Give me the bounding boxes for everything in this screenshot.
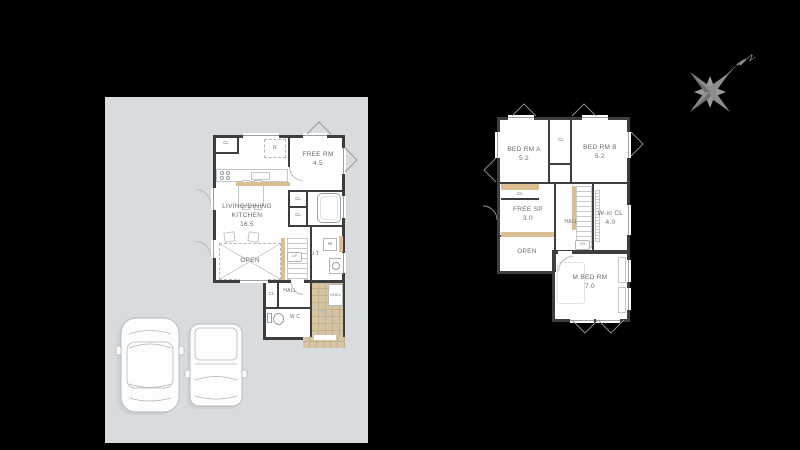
master-bedroom-label: M BED RM 7.0 <box>560 274 620 292</box>
open-label-2f: OPEN <box>501 248 553 257</box>
car-sedan <box>116 318 184 415</box>
wall <box>266 307 310 309</box>
hall-label-1f: HALL <box>274 288 306 295</box>
wall <box>288 190 345 192</box>
ldk-label: LIVING/DINING KITCHEN 16.5 <box>213 203 281 229</box>
hall-label-2f: HALL <box>556 219 586 226</box>
armchair <box>223 231 235 242</box>
wall <box>550 163 570 165</box>
closet-label: CL <box>501 191 539 197</box>
car-mirror <box>242 370 247 378</box>
wall <box>288 206 308 208</box>
closet-label: CL <box>290 212 306 218</box>
floorplan-canvas: CL R FREE RM 4.5 LIVING/DINING KITCHEN 1… <box>0 0 800 450</box>
window <box>570 318 594 323</box>
window <box>240 278 268 283</box>
bathtub-inner <box>320 196 338 220</box>
wall <box>501 198 539 200</box>
wall <box>288 225 345 227</box>
car-compact <box>185 324 247 409</box>
window <box>303 133 327 138</box>
window <box>243 133 279 138</box>
stairs-down-badge: DN <box>575 240 590 250</box>
closet-label: CL <box>215 140 237 146</box>
wall <box>570 119 572 183</box>
window <box>211 240 216 258</box>
bedroom-a-label: BED RM A 5.2 <box>499 146 549 164</box>
window <box>626 260 631 282</box>
kitchen-sink <box>251 172 270 180</box>
wall <box>237 137 239 153</box>
open-label-1f: OPEN <box>219 257 281 266</box>
window <box>626 288 631 310</box>
wall <box>306 192 308 225</box>
wall <box>215 152 239 154</box>
wall <box>288 137 290 167</box>
car-mirror <box>185 370 190 378</box>
front-door <box>314 335 336 340</box>
toilet-tank <box>267 313 272 323</box>
window <box>341 253 346 273</box>
walkin-closet-label: W-in CL 4.0 <box>594 210 627 228</box>
parked-cars <box>112 312 252 420</box>
closet-accent <box>501 184 539 190</box>
free-space-label: FREE SP 3.0 <box>502 206 554 224</box>
wc-label: W C <box>282 314 308 321</box>
compass-needle <box>710 63 739 92</box>
free-room-label: FREE RM 4.5 <box>292 151 344 169</box>
stair-wall <box>281 238 285 280</box>
fridge-label: R <box>264 145 286 152</box>
utility-label: U T <box>304 251 326 258</box>
void-rail <box>501 232 554 237</box>
window <box>596 318 620 323</box>
window <box>341 196 346 218</box>
closet-label: CL <box>552 137 570 143</box>
armchair <box>247 231 259 242</box>
car-mirror <box>116 346 121 355</box>
window <box>508 115 534 120</box>
window <box>582 115 608 120</box>
stairs-2f <box>576 186 592 248</box>
compass-north-label: N <box>743 51 757 65</box>
stairs-up-badge: UP <box>287 252 302 262</box>
wall <box>554 184 556 272</box>
counter-edge <box>236 182 290 186</box>
shoe-closet-label: SHCL <box>328 292 343 297</box>
closet-label: CL <box>290 196 306 202</box>
car-mirror <box>179 346 184 355</box>
wall <box>310 283 312 337</box>
washer-label: W <box>323 241 337 247</box>
compass-rose: N <box>670 46 762 126</box>
bedroom-b-label: BED RM B 5.2 <box>573 144 627 162</box>
accent-strip <box>339 236 343 252</box>
